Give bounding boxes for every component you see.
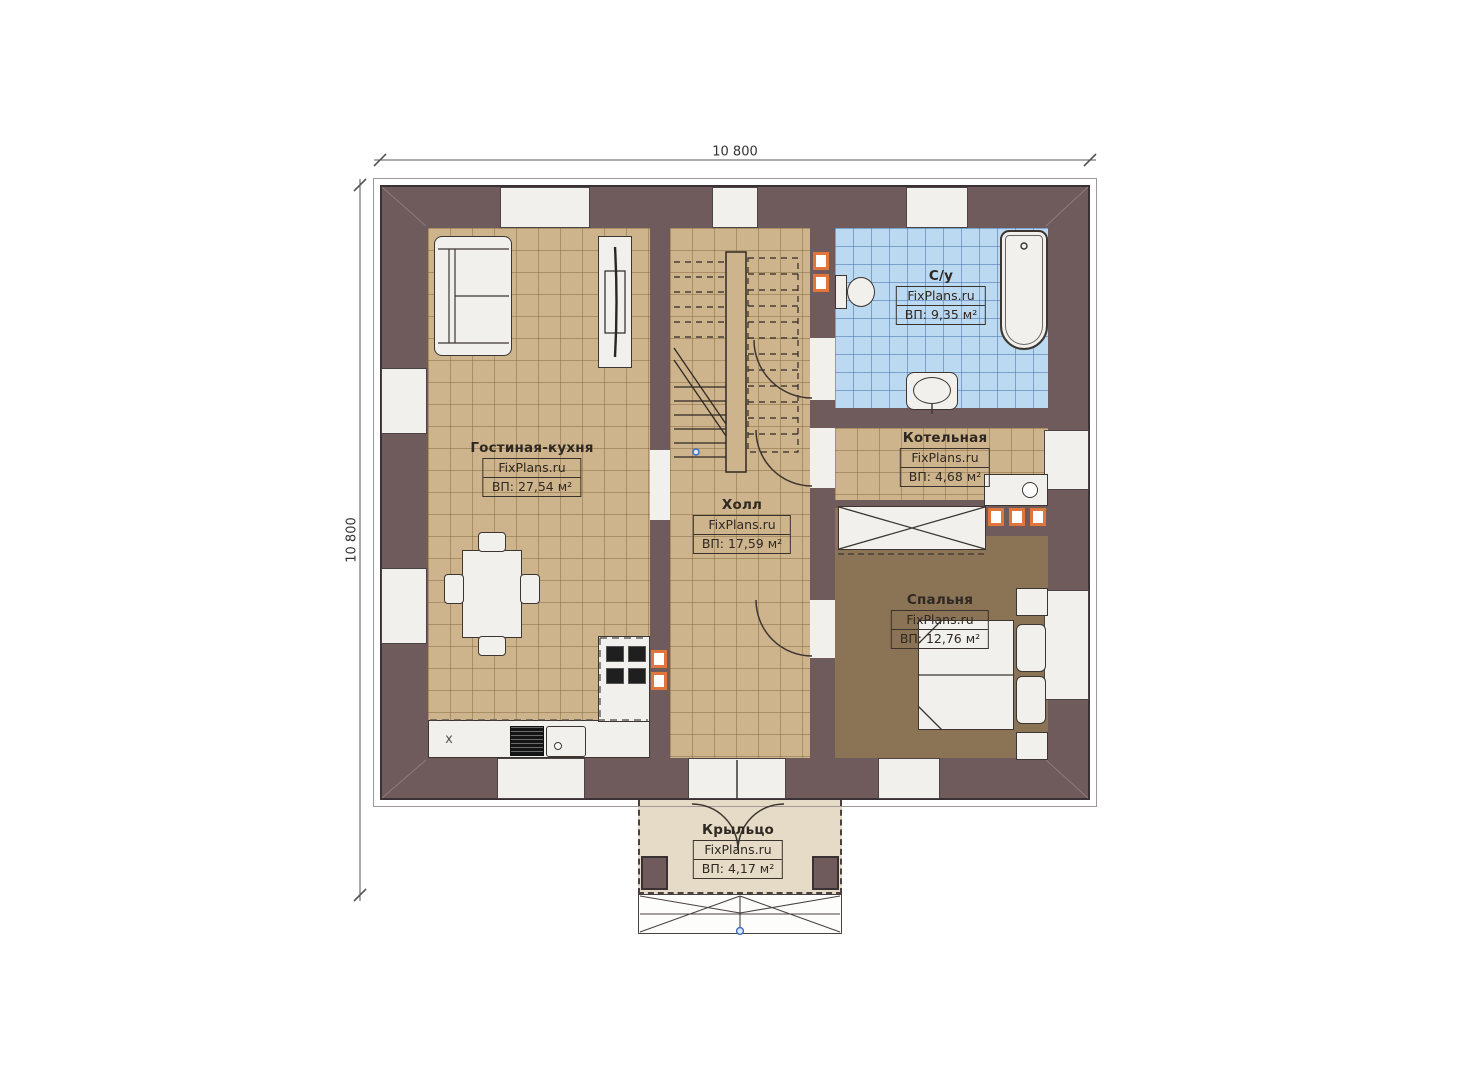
kitchen-cabinet-x: x — [428, 720, 470, 758]
toilet-tank — [835, 275, 847, 309]
wall-living-hall-top — [650, 228, 670, 450]
stove-burner — [606, 668, 624, 684]
opening-bedroom-door — [810, 600, 835, 658]
porch-steps — [638, 894, 842, 934]
watermark: FixPlans.ru — [694, 841, 782, 859]
boiler-counter — [984, 474, 1048, 506]
window-top-living — [500, 187, 590, 228]
sofa — [434, 236, 512, 356]
vent-shaft — [813, 274, 829, 292]
label-boiler: Котельная FixPlans.ru ВП: 4,68 м² — [900, 430, 990, 487]
watermark: FixPlans.ru — [694, 516, 790, 534]
wall-bath-boiler — [835, 408, 1048, 428]
window-bottom-bedroom — [878, 758, 940, 799]
watermark: FixPlans.ru — [901, 449, 989, 467]
window-right-bedroom — [1044, 590, 1089, 700]
label-porch: Крыльцо FixPlans.ru ВП: 4,17 м² — [693, 822, 783, 879]
room-hall — [670, 228, 810, 758]
vent-shaft — [651, 650, 667, 668]
room-name: Крыльцо — [702, 822, 774, 838]
watermark: FixPlans.ru — [897, 287, 985, 305]
room-area: ВП: 4,68 м² — [901, 467, 989, 486]
label-box: FixPlans.ru ВП: 9,35 м² — [896, 286, 986, 325]
opening-living-hall — [650, 450, 670, 520]
chair — [520, 574, 540, 604]
tv-stand — [598, 236, 632, 368]
label-box: FixPlans.ru ВП: 4,17 м² — [693, 840, 783, 879]
window-top-hall — [712, 187, 758, 228]
porch-pillar — [641, 856, 668, 890]
label-bedroom: Спальня FixPlans.ru ВП: 12,76 м² — [891, 592, 989, 649]
room-name: Холл — [722, 497, 762, 513]
wall-hall-bedroom-lower — [810, 658, 835, 758]
opening-boiler-door — [810, 428, 835, 488]
nightstand — [1016, 732, 1048, 760]
label-box: FixPlans.ru ВП: 17,59 м² — [693, 515, 791, 554]
label-box: FixPlans.ru ВП: 27,54 м² — [483, 458, 581, 497]
bath-sink-basin — [913, 377, 951, 404]
room-name: Котельная — [903, 430, 988, 446]
window-bottom-kitchen — [497, 758, 585, 799]
room-area: ВП: 12,76 м² — [892, 629, 988, 648]
window-right-boiler — [1044, 430, 1089, 490]
vent-shaft — [813, 252, 829, 270]
room-name: Гостиная-кухня — [470, 440, 593, 456]
opening-bathroom-door — [810, 338, 835, 400]
vent-shaft — [651, 672, 667, 690]
wall-living-hall-bottom — [650, 520, 670, 758]
entrance-door — [688, 758, 786, 799]
dining-table — [462, 550, 522, 638]
watermark: FixPlans.ru — [892, 611, 988, 629]
wall-hall-bedroom-upper — [810, 488, 835, 600]
vent-shaft — [1030, 508, 1046, 526]
watermark: FixPlans.ru — [484, 459, 580, 477]
room-area: ВП: 9,35 м² — [897, 305, 985, 324]
label-bathroom: С/у FixPlans.ru ВП: 9,35 м² — [896, 268, 986, 325]
chair — [444, 574, 464, 604]
room-name: С/у — [929, 268, 953, 284]
vent-shaft — [1009, 508, 1025, 526]
chair — [478, 636, 506, 656]
chair — [478, 532, 506, 552]
stove-burner — [628, 668, 646, 684]
label-hall: Холл FixPlans.ru ВП: 17,59 м² — [693, 497, 791, 554]
stove-burner — [628, 646, 646, 662]
kitchen-sink — [546, 726, 586, 757]
dimension-left: 10 800 — [345, 511, 360, 569]
room-area: ВП: 17,59 м² — [694, 534, 790, 553]
stove-burner — [606, 646, 624, 662]
kitchen-appliance — [510, 726, 544, 756]
room-name: Спальня — [907, 592, 973, 608]
bed-pillow — [1016, 676, 1046, 724]
room-area: ВП: 27,54 м² — [484, 477, 580, 496]
label-living-kitchen: Гостиная-кухня FixPlans.ru ВП: 27,54 м² — [470, 440, 593, 497]
label-box: FixPlans.ru ВП: 4,68 м² — [900, 448, 990, 487]
window-top-bathroom — [906, 187, 968, 228]
floor-plan-canvas: x Гостиная-кухня FixPlans.ru ВП: 27,54 м… — [0, 0, 1473, 1080]
porch-pillar — [812, 856, 839, 890]
boiler-unit — [1022, 482, 1038, 498]
bathtub — [1000, 230, 1048, 350]
room-area: ВП: 4,17 м² — [694, 859, 782, 878]
label-box: FixPlans.ru ВП: 12,76 м² — [891, 610, 989, 649]
toilet-bowl — [847, 277, 875, 307]
bed-pillow — [1016, 624, 1046, 672]
window-left-upper — [381, 368, 427, 434]
sink-drain — [554, 742, 562, 750]
vent-shaft — [988, 508, 1004, 526]
nightstand — [1016, 588, 1048, 616]
wall-hall-mid — [810, 400, 835, 428]
wardrobe — [838, 506, 986, 550]
window-left-lower — [381, 568, 427, 644]
dimension-top: 10 800 — [706, 145, 764, 160]
